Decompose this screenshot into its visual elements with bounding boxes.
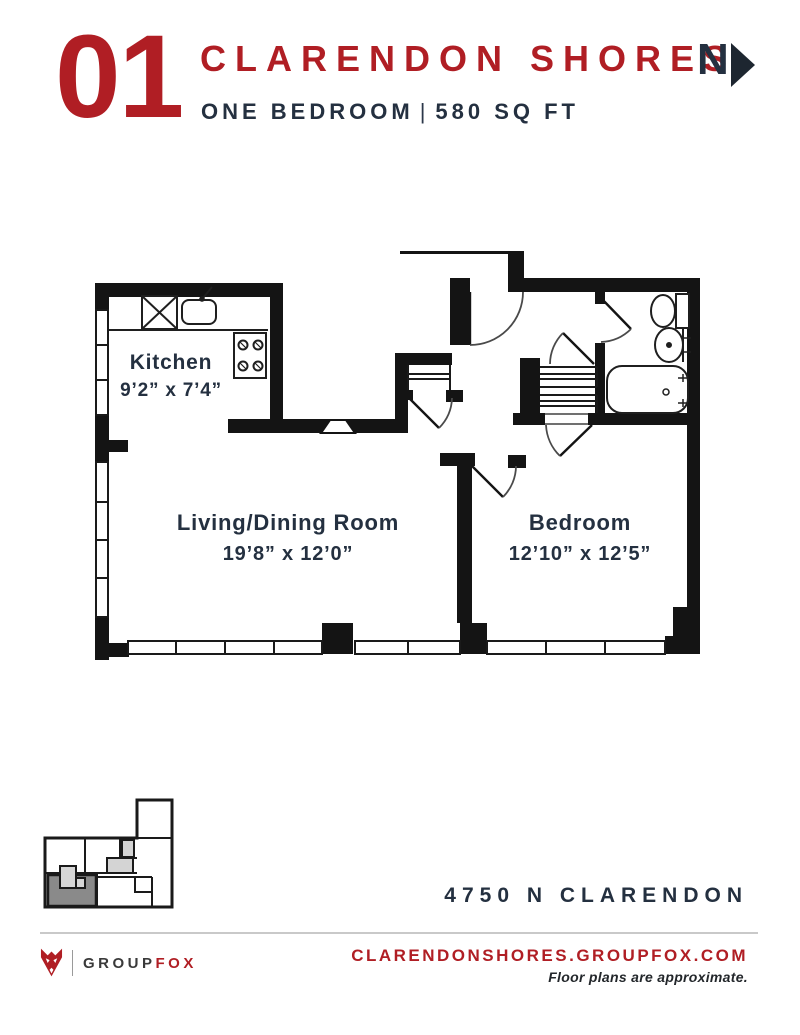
footer-divider bbox=[40, 932, 758, 934]
unit-subtitle: ONE BEDROOM|580 SQ FT bbox=[201, 99, 579, 125]
address: 4750 N CLARENDON bbox=[444, 884, 748, 908]
unit-area: 580 SQ FT bbox=[435, 99, 579, 124]
brand-divider-line bbox=[72, 950, 73, 976]
room-name: Living/Dining Room bbox=[177, 510, 399, 536]
floor-plan-page: 01 CLARENDON SHORES ONE BEDROOM|580 SQ F… bbox=[0, 0, 800, 1035]
room-label-bedroom: Bedroom 12’10” x 12’5” bbox=[509, 510, 651, 566]
disclaimer-text: Floor plans are approximate. bbox=[548, 969, 748, 985]
dishwasher-icon bbox=[142, 296, 177, 329]
property-name: CLARENDON SHORES bbox=[200, 38, 736, 80]
fox-icon bbox=[40, 948, 63, 978]
room-name: Kitchen bbox=[120, 351, 222, 375]
toilet-icon bbox=[651, 294, 689, 328]
key-plan bbox=[40, 783, 185, 913]
stove-icon bbox=[234, 333, 266, 378]
website-text: CLARENDONSHORES.GROUPFOX.COM bbox=[351, 946, 748, 966]
closet-shelves bbox=[408, 365, 597, 424]
brand-group-text: GROUP bbox=[83, 955, 156, 972]
north-arrow-icon bbox=[728, 40, 758, 90]
brand-logo: GROUPFOX bbox=[40, 946, 197, 980]
floor-plan-drawing bbox=[85, 245, 710, 665]
north-label: N bbox=[697, 35, 729, 84]
bathtub-icon bbox=[607, 366, 688, 413]
unit-type: ONE BEDROOM bbox=[201, 99, 414, 124]
north-indicator: N bbox=[697, 38, 729, 82]
room-label-living-dining: Living/Dining Room 19’8” x 12’0” bbox=[177, 510, 399, 566]
room-dimensions: 19’8” x 12’0” bbox=[177, 543, 399, 566]
room-dimensions: 12’10” x 12’5” bbox=[509, 543, 651, 566]
room-name: Bedroom bbox=[509, 510, 651, 536]
unit-number: 01 bbox=[55, 18, 182, 136]
subtitle-separator: | bbox=[414, 99, 436, 124]
bath-sink-icon bbox=[655, 328, 691, 362]
room-dimensions: 9’2” x 7’4” bbox=[120, 380, 222, 402]
brand-fox-text: FOX bbox=[156, 955, 197, 972]
room-label-kitchen: Kitchen 9’2” x 7’4” bbox=[120, 351, 222, 402]
